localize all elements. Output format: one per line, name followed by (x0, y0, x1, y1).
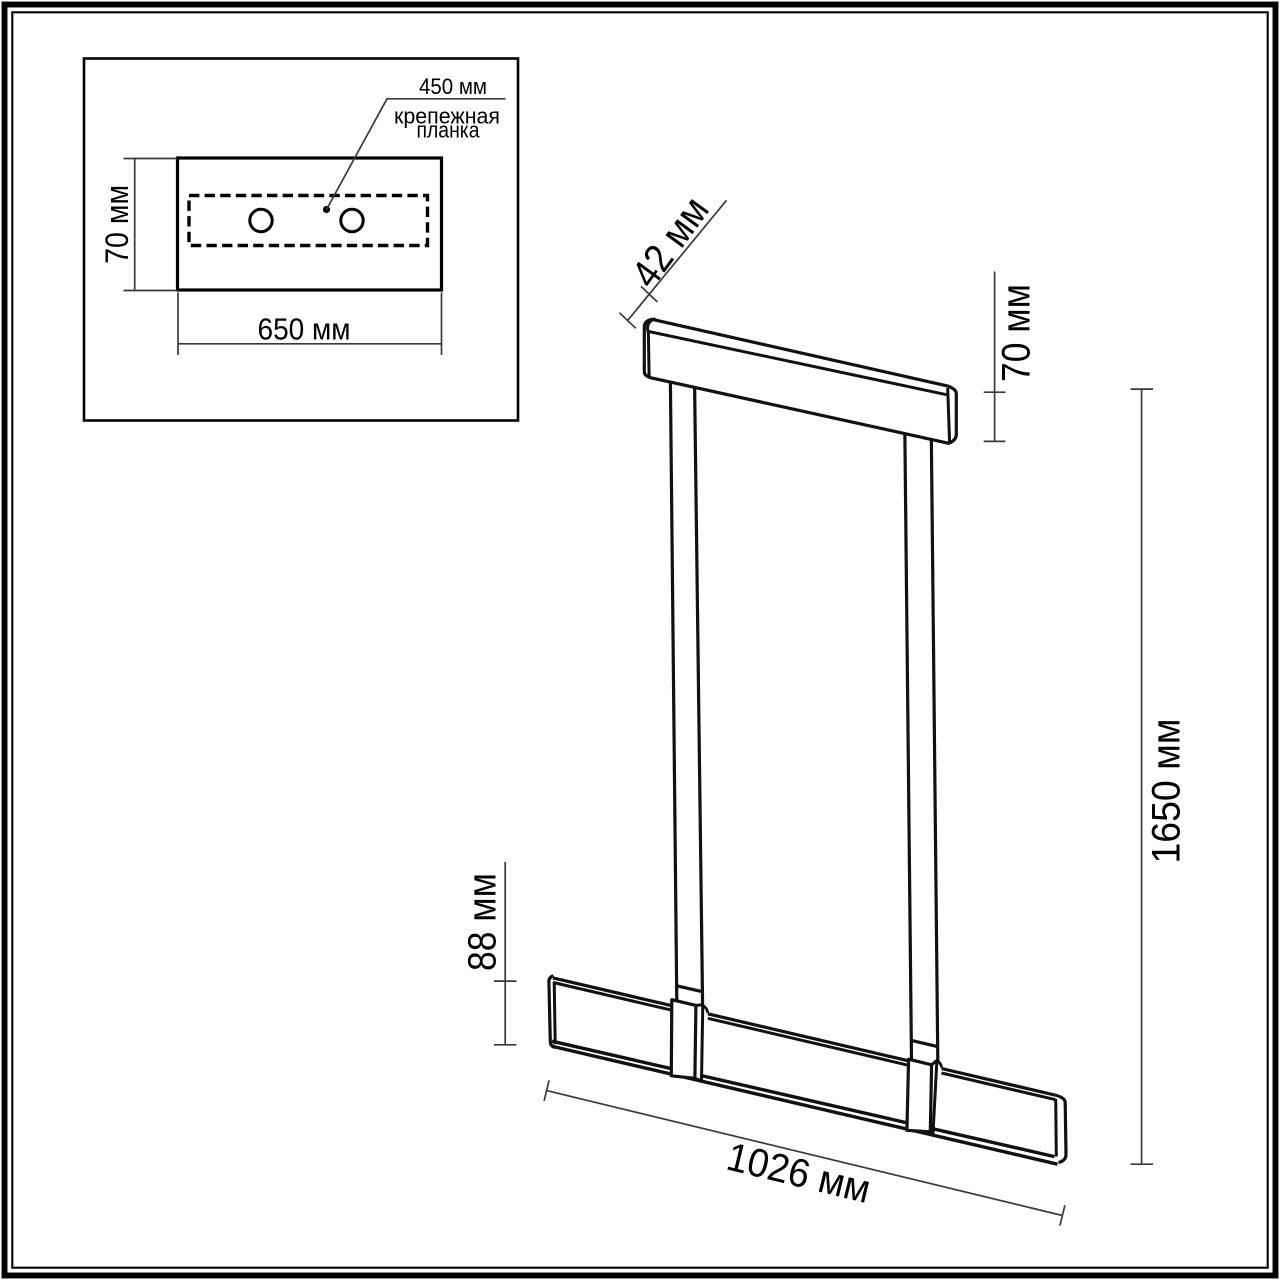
svg-text:70 мм: 70 мм (995, 284, 1039, 382)
svg-text:планка: планка (417, 118, 481, 143)
svg-text:650 мм: 650 мм (258, 312, 351, 347)
svg-text:450 мм: 450 мм (419, 74, 487, 99)
svg-text:1650 мм: 1650 мм (1144, 719, 1188, 864)
svg-text:70 мм: 70 мм (99, 185, 135, 264)
svg-text:88 мм: 88 мм (461, 873, 505, 971)
